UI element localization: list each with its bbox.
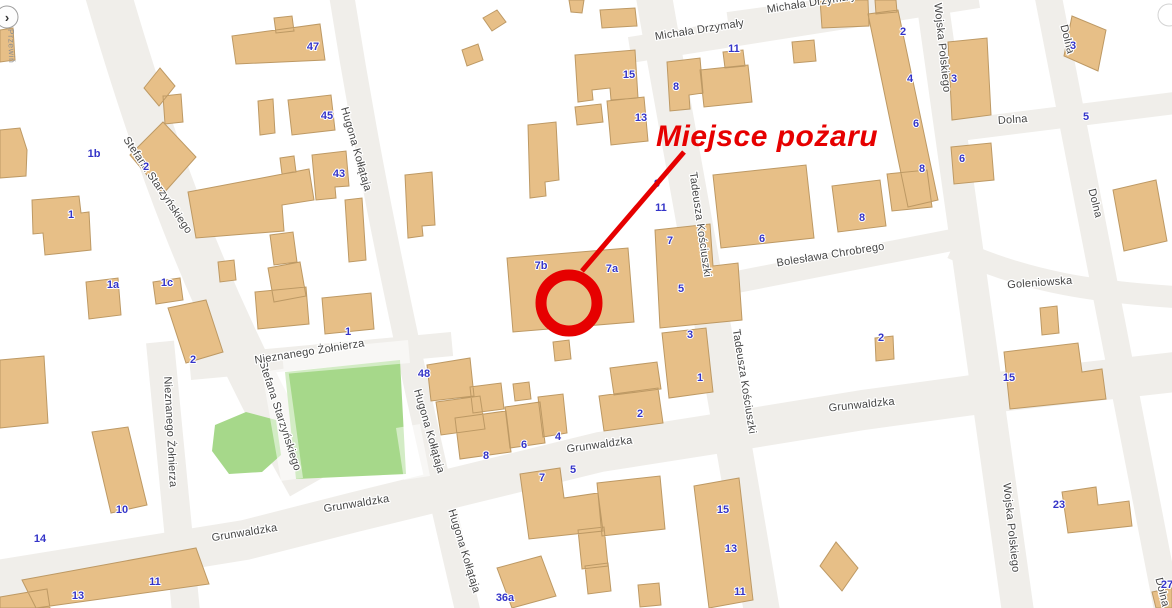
building-number: 1a xyxy=(107,279,120,291)
pan-toggle-left-label: Przewiń xyxy=(6,29,17,64)
building-number: 6 xyxy=(521,439,527,451)
building-number: 10 xyxy=(116,504,128,516)
building-number: 14 xyxy=(34,533,47,545)
building-number: 11 xyxy=(728,43,740,55)
building-number: 8 xyxy=(919,163,925,175)
building-number: 6 xyxy=(759,233,765,245)
building-number: 6 xyxy=(959,153,965,165)
building-number: 5 xyxy=(570,464,576,476)
road-boleslawa-chrobrego xyxy=(706,240,952,288)
building-number: 2 xyxy=(143,161,149,173)
building-number: 8 xyxy=(673,81,679,93)
building-number: 47 xyxy=(307,41,319,53)
building-number: 5 xyxy=(1083,111,1089,123)
building-number: 3 xyxy=(951,73,957,85)
building-number: 23 xyxy=(1053,499,1065,511)
building-number: 11 xyxy=(734,586,746,598)
building-number: 1c xyxy=(161,277,173,289)
street-label-dolna: Dolna xyxy=(998,113,1029,127)
building-number: 13 xyxy=(635,112,647,124)
building-number: 36a xyxy=(496,592,515,604)
building-number: 43 xyxy=(333,168,345,180)
building-number: 5 xyxy=(678,283,684,295)
chevron-right-icon[interactable]: › xyxy=(5,10,9,25)
building-number: 4 xyxy=(555,431,562,443)
building-number: 11 xyxy=(149,576,161,588)
building-number: 1 xyxy=(697,372,703,384)
pan-toggle-right-circle[interactable] xyxy=(1158,4,1172,26)
building-number: 13 xyxy=(72,590,84,602)
building-number: 13 xyxy=(725,543,737,555)
building-number: 1 xyxy=(345,326,351,338)
building-number: 3 xyxy=(1070,40,1076,52)
building-number: 15 xyxy=(717,504,729,516)
building-number: 4 xyxy=(907,73,914,85)
building-number: 1b xyxy=(88,148,101,160)
building-number: 11 xyxy=(655,202,667,214)
building-number: 7b xyxy=(535,260,548,272)
building-number: 2 xyxy=(900,26,906,38)
map-viewport[interactable]: Michała DrzymałyMichała DrzymałyWojska P… xyxy=(0,0,1172,608)
fire-annotation-label: Miejsce pożaru xyxy=(656,120,878,153)
building-number: 2 xyxy=(878,332,884,344)
building-number: 8 xyxy=(483,450,489,462)
building-number: 6 xyxy=(913,118,919,130)
pan-toggle-right[interactable] xyxy=(1158,4,1172,26)
building-number: 3 xyxy=(687,329,693,341)
building-number: 48 xyxy=(418,368,430,380)
building-number: 27 xyxy=(1161,579,1172,591)
building-number: 15 xyxy=(1003,372,1015,384)
building-number: 2 xyxy=(637,408,643,420)
building-number: 8 xyxy=(859,212,865,224)
building-number: 7 xyxy=(539,472,545,484)
map-canvas[interactable]: Michała DrzymałyMichała DrzymałyWojska P… xyxy=(0,0,1172,608)
building-number: 15 xyxy=(623,69,635,81)
building-number: 7a xyxy=(606,263,619,275)
building-number: 2 xyxy=(190,354,196,366)
building-number: 1 xyxy=(68,209,74,221)
building-number: 7 xyxy=(667,235,673,247)
building-number: 45 xyxy=(321,110,333,122)
